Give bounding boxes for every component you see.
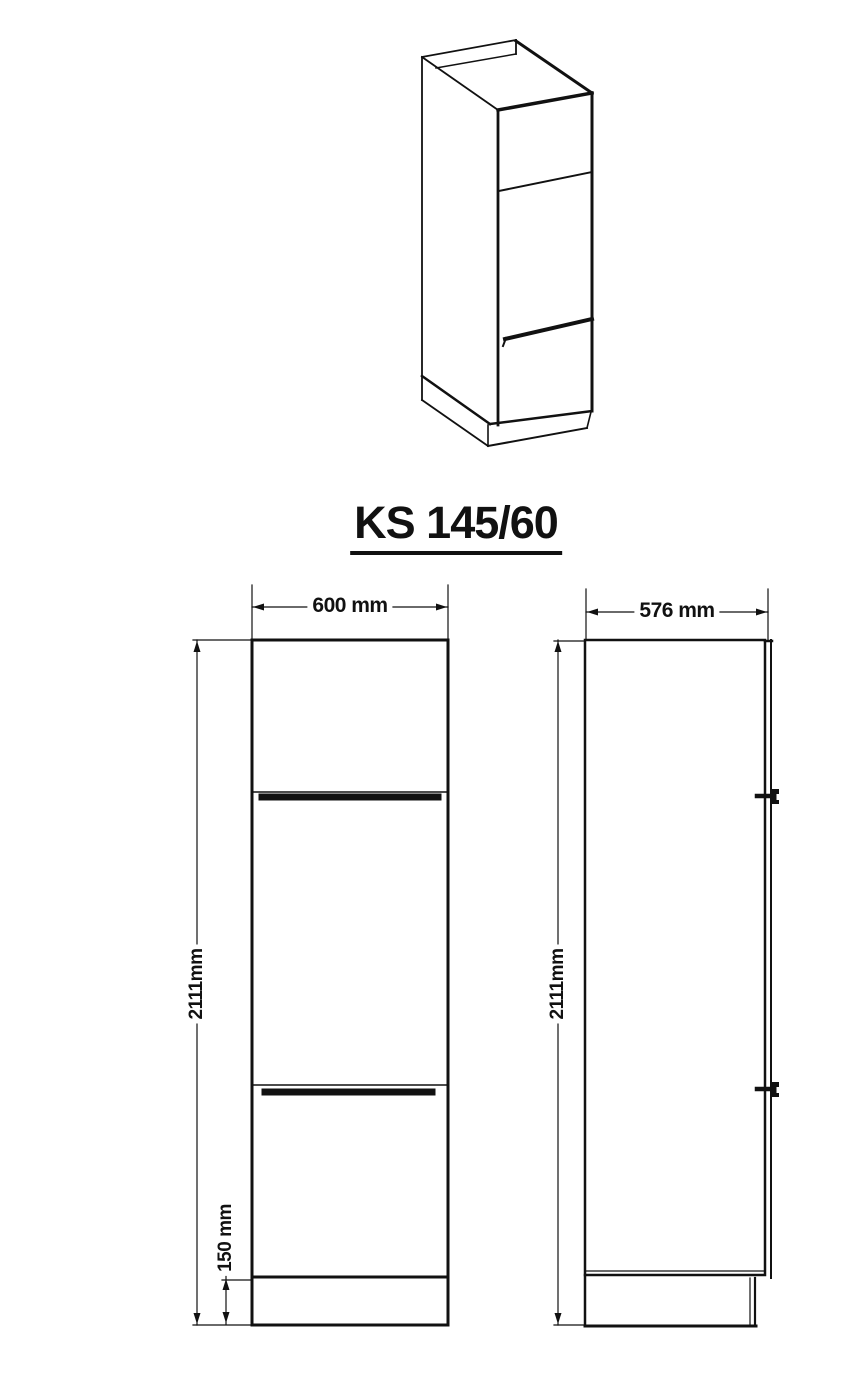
arrowhead: [223, 1279, 230, 1290]
arrowhead: [253, 604, 264, 611]
door-gap-upper-3d: [499, 172, 592, 191]
side-panel-top-edge: [422, 57, 498, 110]
arrowhead: [194, 1313, 201, 1324]
plinth-front-bottom-edge: [488, 428, 587, 446]
arrowhead: [555, 1313, 562, 1324]
cabinet-drawing-svg: [0, 0, 854, 1378]
arrowhead: [555, 641, 562, 652]
front-bottom-edge: [490, 411, 592, 424]
top-right-edge: [516, 41, 592, 93]
plinth-height-label: 150 mm: [216, 1200, 236, 1276]
dimension-arrowheads: [194, 604, 768, 1325]
arrowhead: [756, 609, 767, 616]
side-view-outline: [585, 640, 765, 1275]
plinth-side-bottom-edge: [422, 400, 488, 446]
side-handle-profile-1: [757, 789, 781, 804]
cabinet-3d-view: [422, 40, 592, 446]
side-bottom-edge: [422, 376, 490, 424]
front-top-edge: [498, 93, 592, 110]
front-height-label: 2111mm: [187, 945, 207, 1024]
plinth-front-right-edge: [587, 412, 591, 428]
technical-drawing-page: KS 145/60 600 mm 576 mm 2111mm 2111mm 15…: [0, 0, 854, 1378]
back-panel-top-edge: [422, 40, 516, 57]
front-width-label: 600 mm: [307, 595, 392, 617]
front-view-drawing: [252, 640, 448, 1325]
arrowhead: [194, 641, 201, 652]
page-title: KS 145/60: [350, 497, 562, 555]
side-depth-label: 576 mm: [634, 600, 719, 622]
front-view-outline: [252, 640, 448, 1325]
side-height-label: 2111mm: [548, 945, 568, 1024]
door-gap-lower-3d: [505, 319, 592, 339]
side-view-drawing: [585, 640, 781, 1326]
arrowhead: [436, 604, 447, 611]
arrowhead: [223, 1312, 230, 1323]
side-handle-profile-2: [757, 1082, 781, 1097]
arrowhead: [587, 609, 598, 616]
top-panel-back-seam: [436, 54, 516, 68]
